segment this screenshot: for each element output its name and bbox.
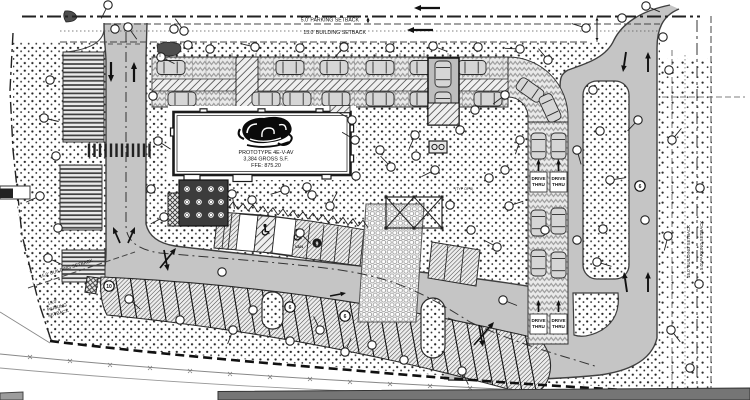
svg-text:5.0’ PARKING SETBACK: 5.0’ PARKING SETBACK [699,221,704,270]
svg-text:5.0’ PARKING SETBACK: 5.0’ PARKING SETBACK [301,18,360,24]
svg-text:(TYP OF 6): (TYP OF 6) [455,187,473,191]
svg-text:THRU: THRU [532,324,545,329]
svg-text:3,384 GROSS S.F.: 3,384 GROSS S.F. [243,157,288,163]
svg-text:THRU: THRU [552,324,565,329]
svg-text:DRIVE: DRIVE [551,176,565,181]
svg-text:6: 6 [344,314,347,320]
svg-text:6: 6 [639,184,642,190]
svg-text:FFE: 875.20: FFE: 875.20 [251,163,281,169]
svg-text:THRU: THRU [532,182,545,187]
svg-text:9: 9 [316,241,319,247]
svg-text:VAN: VAN [295,244,303,249]
svg-text:15.0’ BUILDING SETBACK: 15.0’ BUILDING SETBACK [303,30,366,36]
svg-text:DRIVE: DRIVE [551,318,565,323]
svg-text:15.0’ BUILDING SETBACK: 15.0’ BUILDING SETBACK [686,225,691,278]
svg-text:PROTOTYPE 4E-V-AV: PROTOTYPE 4E-V-AV [239,150,294,156]
svg-text:6: 6 [289,305,292,311]
svg-text:10: 10 [106,284,112,290]
svg-text:DRIVE: DRIVE [531,318,545,323]
svg-text:THRU: THRU [552,182,565,187]
svg-text:DRIVE: DRIVE [531,176,545,181]
